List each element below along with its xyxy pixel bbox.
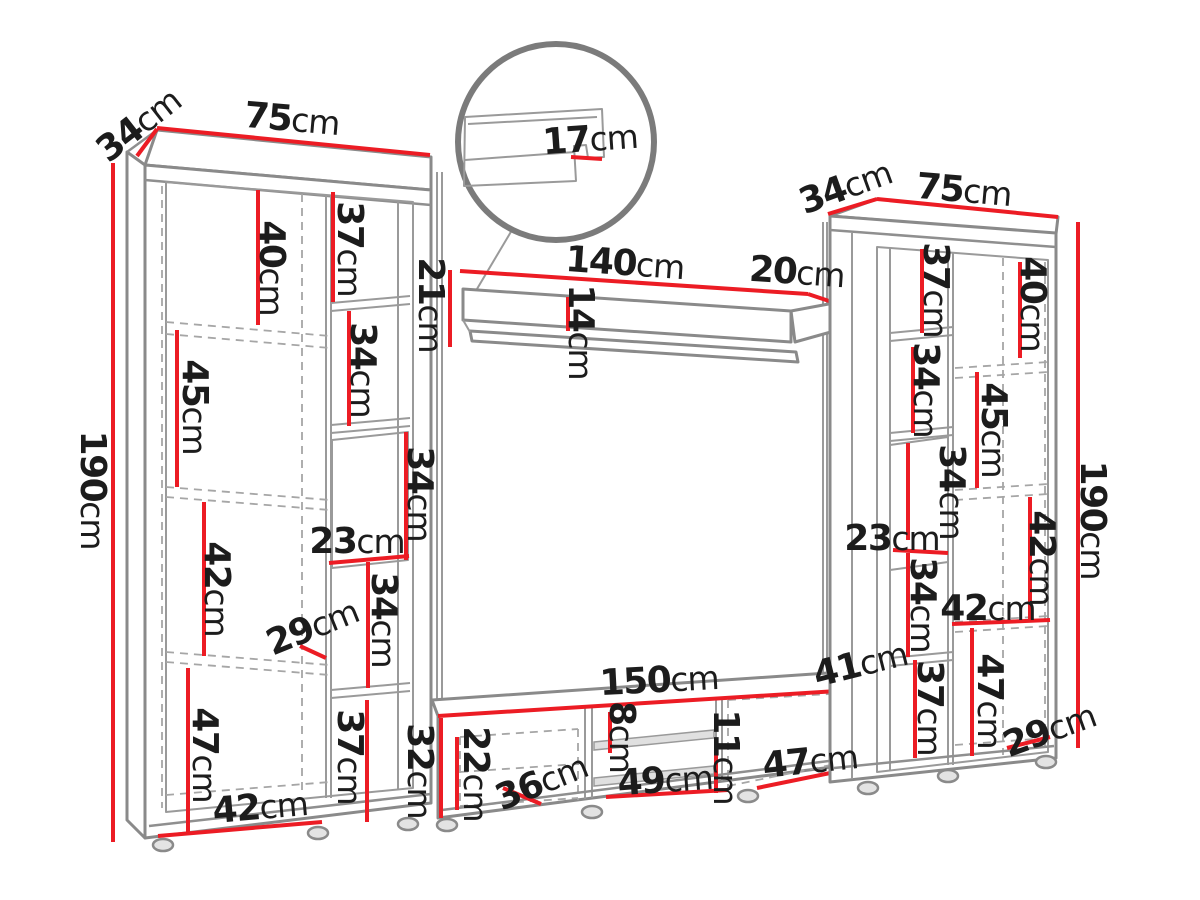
- dim-left-shelf-45: 45cm: [174, 359, 215, 454]
- dim-right-height: 190cm: [1072, 461, 1113, 580]
- dim-left-col-34-lower: 34cm: [363, 572, 404, 667]
- dim-shelf-depth-20: 20cm: [748, 249, 846, 297]
- cabinet-foot: [153, 839, 173, 851]
- cabinet-foot: [308, 827, 328, 839]
- dim-right-shelf-45: 45cm: [973, 382, 1014, 477]
- dim-shelf-width-140: 140cm: [564, 239, 686, 288]
- dim-left-open-34: 34cm: [399, 446, 440, 541]
- cabinet-foot: [858, 782, 878, 794]
- dim-right-col-width-23: 23cm: [844, 518, 939, 559]
- dim-left-col-37-top: 37cm: [329, 201, 370, 296]
- left-cabinet-side-panel: [127, 152, 145, 838]
- dim-shelf-height-21: 21cm: [410, 257, 451, 352]
- dim-left-shelf-40: 40cm: [251, 220, 292, 315]
- dim-tv-door-22: 22cm: [455, 726, 496, 821]
- dim-shelf-lip-17: 17cm: [541, 116, 639, 164]
- tv-stand-foot: [437, 819, 457, 831]
- dim-left-col-34-upper: 34cm: [342, 322, 383, 417]
- dim-left-col-width-23: 23cm: [309, 521, 404, 562]
- dim-left-height: 190cm: [72, 431, 113, 550]
- dim-right-shelf-40: 40cm: [1012, 256, 1053, 351]
- dim-left-width: 75cm: [243, 95, 342, 144]
- dim-right-width: 75cm: [915, 166, 1014, 215]
- dim-tv-height-32: 32cm: [399, 723, 440, 818]
- dim-right-col-34-upper: 34cm: [905, 342, 946, 437]
- dim-right-col-37-bottom: 37cm: [909, 660, 950, 755]
- dim-tv-gap-11: 11cm: [705, 709, 746, 804]
- cabinet-foot: [938, 770, 958, 782]
- dim-left-shelf-47: 47cm: [184, 707, 225, 802]
- dim-right-col-34-lower: 34cm: [902, 557, 943, 652]
- diagram-canvas: 34cm 75cm 190cm 40cm 37cm 45cm 34cm 34cm…: [0, 0, 1200, 900]
- dim-left-shelf-42: 42cm: [196, 541, 237, 636]
- cabinet-foot: [398, 818, 418, 830]
- tv-stand-foot: [582, 806, 602, 818]
- dim-left-col-37-bottom: 37cm: [329, 709, 370, 804]
- cabinet-foot: [1036, 756, 1056, 768]
- dim-tv-shelf-49: 49cm: [616, 757, 714, 805]
- furniture-dimension-diagram: 34cm 75cm 190cm 40cm 37cm 45cm 34cm 34cm…: [0, 0, 1200, 900]
- dim-shelf-front-14: 14cm: [560, 284, 601, 379]
- dim-right-col-37-top: 37cm: [915, 242, 956, 337]
- dim-right-shelf-42-width: 42cm: [940, 588, 1035, 629]
- dim-tv-width-150: 150cm: [599, 657, 720, 704]
